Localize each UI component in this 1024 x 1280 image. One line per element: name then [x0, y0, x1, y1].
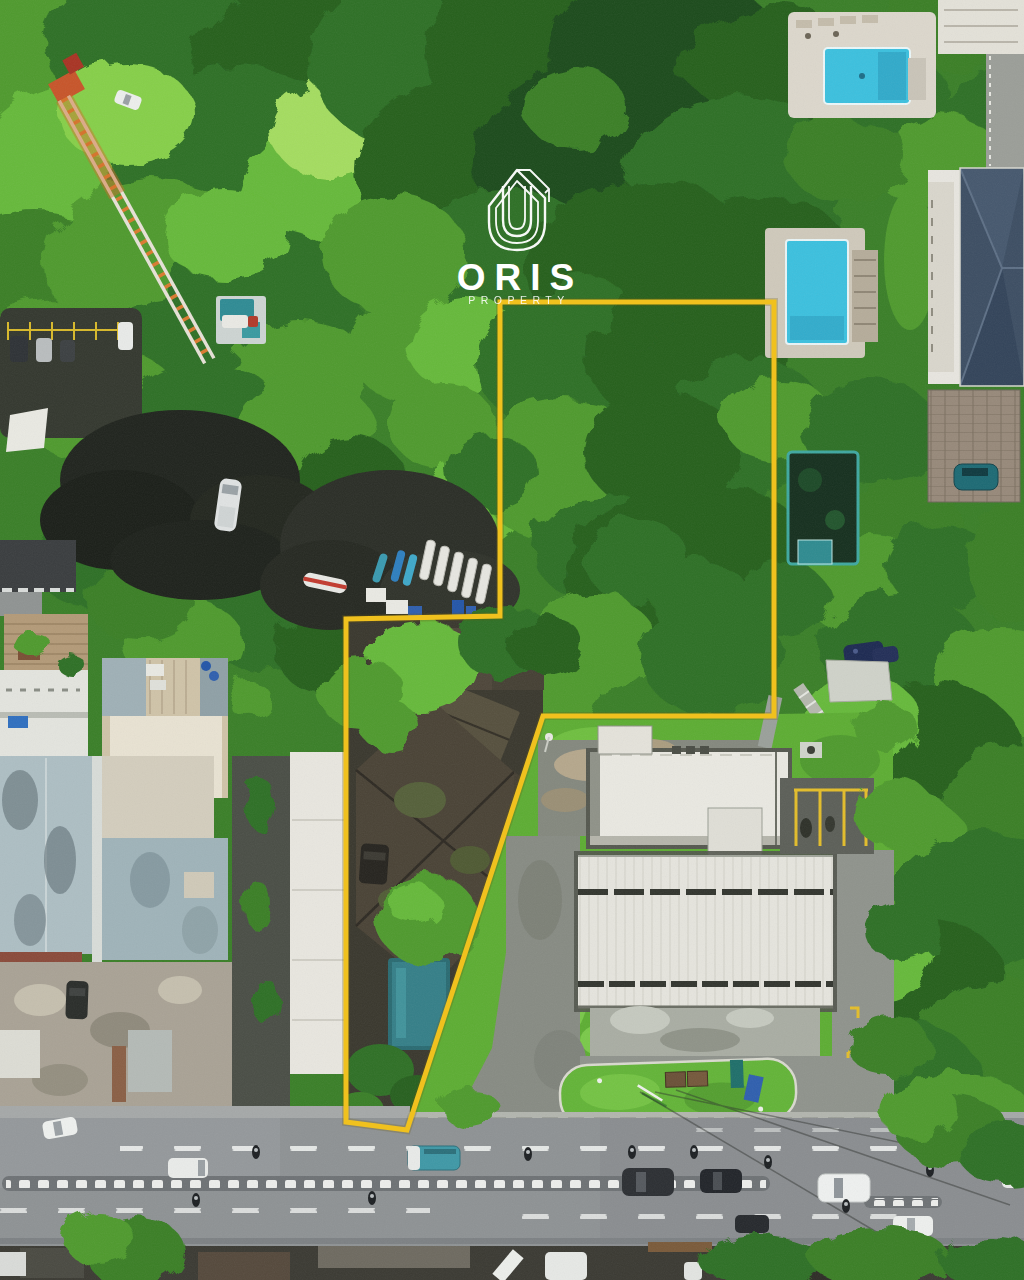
brand-tagline: PROPERTY: [468, 294, 570, 306]
aerial-photo-canvas: ORIS PROPERTY: [0, 0, 1024, 1280]
brand-name: ORIS: [457, 257, 583, 298]
photo-grain: [0, 0, 1024, 1280]
aerial-photo: ORIS PROPERTY: [0, 0, 1024, 1280]
